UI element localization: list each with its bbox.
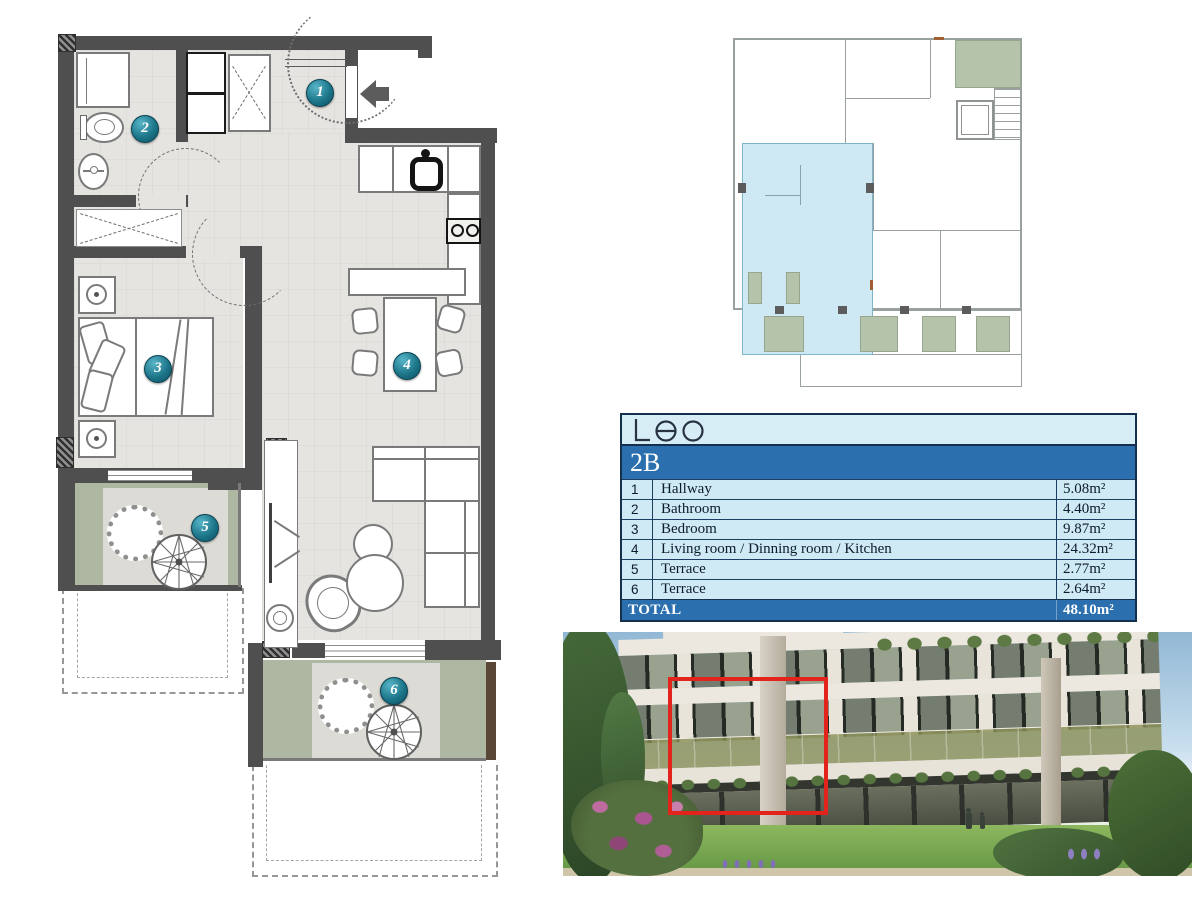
pillow xyxy=(80,368,115,413)
leo-logo xyxy=(631,417,709,443)
site-door-mark xyxy=(934,37,944,40)
wall-segment xyxy=(418,36,432,58)
room-area: 4.40m² xyxy=(1056,500,1135,519)
terrace-6-rail xyxy=(486,662,496,760)
sofa xyxy=(424,500,480,608)
room-name: Terrace xyxy=(652,580,1056,599)
site-green-terrace xyxy=(860,316,898,352)
row-number: 4 xyxy=(622,540,652,559)
table-total-row: TOTAL 48.10m² xyxy=(622,599,1135,620)
row-number: 6 xyxy=(622,580,652,599)
room-area: 2.64m² xyxy=(1056,580,1135,599)
site-elevator xyxy=(956,100,994,140)
site-green-terrace xyxy=(764,316,804,352)
column-hatched xyxy=(56,437,74,468)
row-number: 2 xyxy=(622,500,652,519)
entrance-arrow-icon xyxy=(376,87,389,101)
lamp-dot xyxy=(94,436,99,441)
bedroom-terrace-window xyxy=(108,470,192,481)
row-number: 3 xyxy=(622,520,652,539)
row-number: 1 xyxy=(622,480,652,499)
person-silhouette xyxy=(966,813,972,829)
vanity-divider xyxy=(86,58,87,104)
unit-label: 2B xyxy=(622,444,1135,479)
table-row: 2 Bathroom 4.40m² xyxy=(622,499,1135,519)
entrance-arrow-icon xyxy=(360,80,376,108)
room-badge-terrace6: 6 xyxy=(380,677,408,705)
table-row: 4 Living room / Dinning room / Kitchen 2… xyxy=(622,539,1135,559)
site-elevator-inner xyxy=(961,105,989,135)
site-door-mark xyxy=(870,280,873,290)
row-number: 5 xyxy=(622,560,652,579)
room-badge-bathroom: 2 xyxy=(131,115,159,143)
terrace-5-rail xyxy=(238,483,241,587)
site-wall-line xyxy=(873,230,1022,231)
washing-machine-drum xyxy=(273,611,287,625)
closet-shelf xyxy=(188,92,224,95)
wall-segment xyxy=(248,643,263,767)
person-silhouette xyxy=(980,816,985,829)
table-row: 5 Terrace 2.77m² xyxy=(622,559,1135,579)
site-green-terrace xyxy=(786,272,800,304)
site-wall-line xyxy=(845,98,930,99)
hedge-right xyxy=(993,828,1123,876)
lavender-bush xyxy=(1063,844,1103,864)
total-area: 48.10m² xyxy=(1056,600,1135,620)
wall-segment xyxy=(481,143,495,660)
bathroom-vanity xyxy=(76,52,130,108)
column-hatched xyxy=(58,34,76,52)
room-name: Terrace xyxy=(652,560,1056,579)
table-logo-row xyxy=(622,415,1135,444)
site-stairs xyxy=(994,88,1022,140)
shower-stall xyxy=(228,54,271,132)
coffee-table xyxy=(346,554,404,612)
table-row: 6 Terrace 2.64m² xyxy=(622,579,1135,599)
living-terrace-window xyxy=(325,645,425,657)
lavender-bush xyxy=(718,856,778,872)
nightstand xyxy=(78,276,116,314)
table-row: 1 Hallway 5.08m² xyxy=(622,479,1135,499)
sofa-cushion-line xyxy=(426,552,478,554)
hall-closet xyxy=(186,52,226,134)
room-area: 5.08m² xyxy=(1056,480,1135,499)
toilet-cistern xyxy=(80,115,87,140)
room-name: Living room / Dinning room / Kitchen xyxy=(652,540,1056,559)
parasol-icon xyxy=(365,703,423,761)
room-area: 9.87m² xyxy=(1056,520,1135,539)
dining-chair xyxy=(351,349,379,377)
site-wall-line xyxy=(765,195,800,196)
toilet-bowl xyxy=(94,119,115,135)
sofa xyxy=(372,446,480,502)
building-render xyxy=(563,632,1192,876)
kitchen-sink-icon xyxy=(410,157,443,191)
faucet-icon xyxy=(421,149,430,158)
unit-highlight-box xyxy=(668,677,828,815)
site-column xyxy=(738,183,746,193)
sofa-back-line xyxy=(374,458,478,460)
bed-fold-line xyxy=(181,319,190,415)
site-green-terrace xyxy=(976,316,1010,352)
parasol-icon xyxy=(150,533,208,591)
site-column xyxy=(962,306,971,314)
table-row: 3 Bedroom 9.87m² xyxy=(622,519,1135,539)
site-ground-outline xyxy=(800,355,1022,387)
sink-icon xyxy=(78,153,109,190)
site-wall-line xyxy=(940,230,941,310)
site-green-terrace xyxy=(955,40,1021,88)
wall-segment xyxy=(345,128,497,143)
sofa-back-line xyxy=(464,502,466,606)
room-name: Bedroom xyxy=(652,520,1056,539)
facade-pillar xyxy=(1041,658,1061,838)
room-name: Hallway xyxy=(652,480,1056,499)
site-column xyxy=(838,306,847,314)
room-badge-hallway: 1 xyxy=(306,79,334,107)
site-unit-highlight xyxy=(742,143,873,355)
wall-segment xyxy=(425,640,501,660)
dining-chair xyxy=(351,307,380,336)
site-key-plan xyxy=(720,25,1050,395)
wall-segment xyxy=(58,470,75,591)
room-name: Bathroom xyxy=(652,500,1056,519)
nightstand xyxy=(78,420,116,458)
kitchen-bar xyxy=(348,268,466,296)
floor-plan: 1 2 3 4 5 6 xyxy=(0,0,560,900)
toilet-icon xyxy=(84,112,124,143)
area-table: 2B 1 Hallway 5.08m² 2 Bathroom 4.40m² 3 … xyxy=(620,413,1137,622)
burner-icon xyxy=(466,224,479,237)
site-column xyxy=(866,183,874,193)
sofa-cushion-line xyxy=(424,448,426,500)
lamp-dot xyxy=(94,292,99,297)
room-badge-terrace5: 5 xyxy=(191,514,219,542)
site-column xyxy=(900,306,909,314)
site-wall-line xyxy=(930,38,931,98)
site-column xyxy=(775,306,784,314)
bedroom-door-swing xyxy=(192,202,296,306)
tv-icon xyxy=(269,503,272,583)
brochure-page: 1 2 3 4 5 6 xyxy=(0,0,1200,900)
site-green-terrace xyxy=(748,272,762,304)
dining-chair xyxy=(434,348,464,378)
wall-segment xyxy=(58,36,74,480)
site-wall-line xyxy=(845,38,846,143)
room-area: 24.32m² xyxy=(1056,540,1135,559)
wall-segment xyxy=(74,246,186,258)
room-area: 2.77m² xyxy=(1056,560,1135,579)
washing-machine-icon xyxy=(266,604,294,632)
burner-icon xyxy=(451,224,464,237)
sink-drain xyxy=(90,166,98,174)
counter-divider xyxy=(392,147,394,191)
room-badge-bedroom: 3 xyxy=(144,355,172,383)
entry-door-swing xyxy=(287,4,407,124)
total-label: TOTAL xyxy=(622,600,1056,620)
room-badge-living: 4 xyxy=(393,352,421,380)
counter-divider xyxy=(447,147,449,191)
bed-sheet-line xyxy=(135,319,137,415)
balcony-projection-dashed xyxy=(77,588,228,678)
site-green-terrace xyxy=(922,316,956,352)
balcony-projection-dashed xyxy=(266,765,482,861)
stove-icon xyxy=(446,218,481,244)
site-wall-line xyxy=(800,165,801,205)
wardrobe-dashed xyxy=(76,209,182,247)
